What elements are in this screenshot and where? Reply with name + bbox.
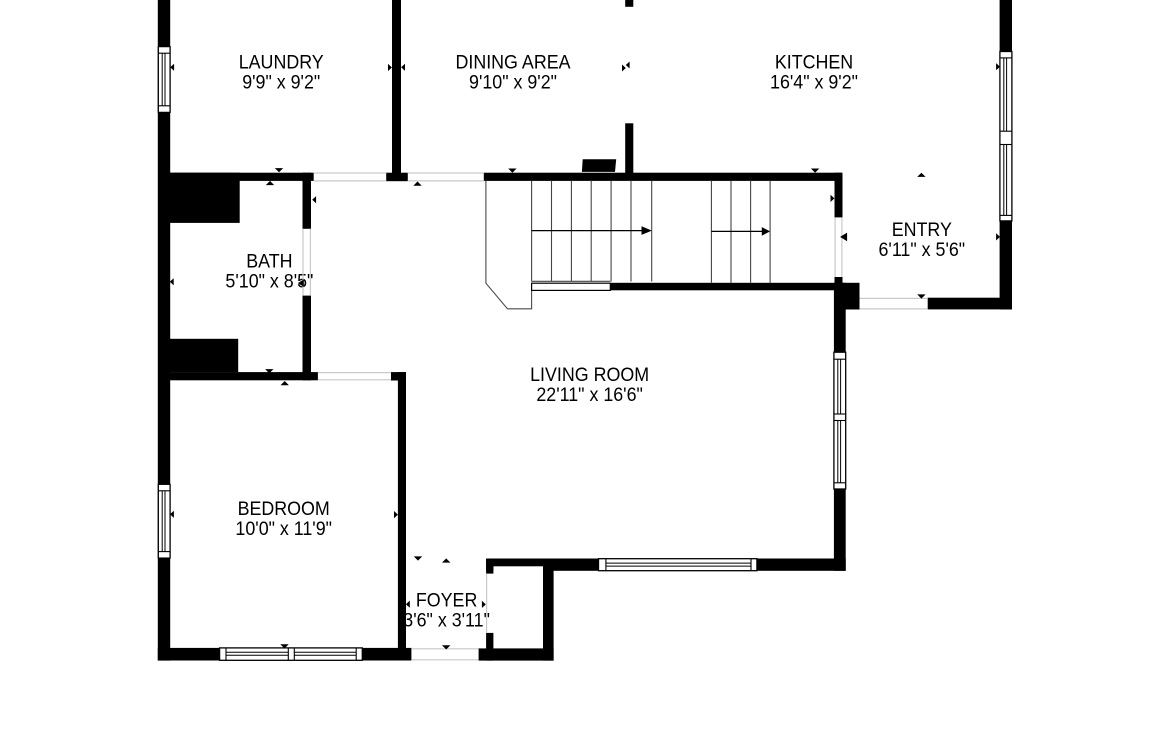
svg-text:LAUNDRY: LAUNDRY: [239, 51, 324, 73]
svg-text:LIVING ROOM: LIVING ROOM: [530, 364, 649, 386]
svg-text:16'4" x 9'2": 16'4" x 9'2": [770, 71, 858, 93]
svg-text:DINING AREA: DINING AREA: [455, 51, 571, 73]
svg-text:6'11" x 5'6": 6'11" x 5'6": [878, 238, 965, 260]
svg-text:KITCHEN: KITCHEN: [775, 51, 853, 73]
svg-text:BEDROOM: BEDROOM: [238, 497, 330, 519]
svg-text:FOYER: FOYER: [416, 589, 477, 611]
svg-text:10'0" x 11'9": 10'0" x 11'9": [235, 517, 332, 539]
svg-text:BATH: BATH: [246, 250, 292, 272]
svg-text:3'6" x 3'11": 3'6" x 3'11": [403, 609, 490, 631]
svg-text:9'10" x 9'2": 9'10" x 9'2": [469, 71, 557, 93]
svg-text:ENTRY: ENTRY: [892, 218, 952, 240]
svg-text:5'10" x 8'5": 5'10" x 8'5": [225, 270, 313, 292]
svg-text:9'9" x 9'2": 9'9" x 9'2": [242, 71, 320, 93]
svg-text:22'11" x 16'6": 22'11" x 16'6": [536, 384, 642, 406]
